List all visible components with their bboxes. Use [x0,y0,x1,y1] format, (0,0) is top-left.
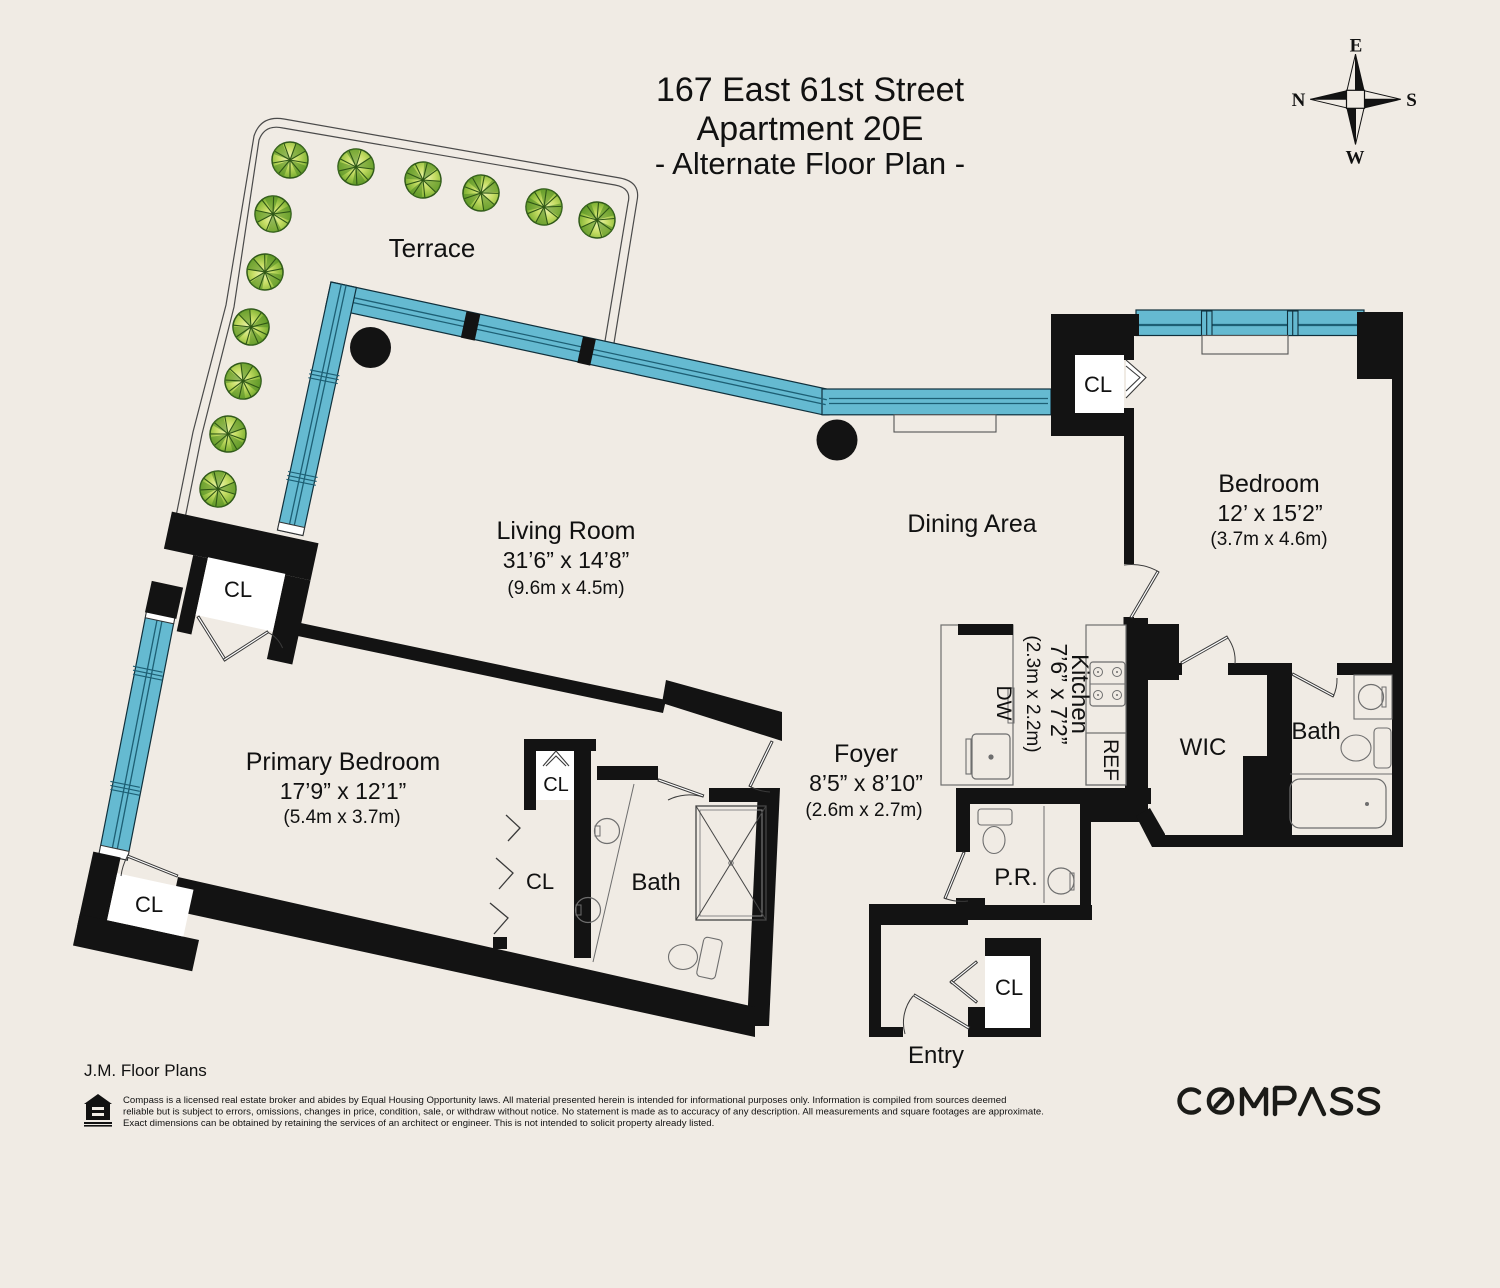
svg-text:31’6” x 14’8”: 31’6” x 14’8” [503,547,630,573]
svg-text:7’6” x 7’2”: 7’6” x 7’2” [1046,644,1072,745]
svg-text:Living Room: Living Room [497,517,636,545]
svg-text:Apartment 20E: Apartment 20E [697,110,924,148]
svg-text:CL: CL [224,577,252,602]
svg-text:E: E [1350,35,1363,56]
svg-text:- Alternate Floor Plan -: - Alternate Floor Plan - [655,146,965,181]
svg-text:N: N [1292,90,1306,111]
svg-text:W: W [1346,147,1365,168]
svg-text:J.M. Floor Plans: J.M. Floor Plans [84,1061,207,1080]
svg-text:REF: REF [1099,739,1122,781]
svg-text:P.R.: P.R. [994,864,1038,891]
svg-text:CL: CL [1084,372,1112,397]
svg-text:CL: CL [995,975,1023,1000]
svg-text:S: S [1406,90,1417,111]
svg-text:(5.4m x 3.7m): (5.4m x 3.7m) [283,807,400,828]
svg-text:CL: CL [526,869,554,894]
svg-text:17’9” x 12’1”: 17’9” x 12’1” [280,778,407,804]
svg-text:CL: CL [543,774,569,796]
svg-text:(9.6m x 4.5m): (9.6m x 4.5m) [507,578,624,599]
svg-text:8’5” x 8’10”: 8’5” x 8’10” [809,770,923,796]
svg-text:167 East 61st Street: 167 East 61st Street [656,71,965,109]
svg-text:Exact dimensions can be obtain: Exact dimensions can be obtained by reta… [123,1118,714,1129]
svg-text:DW: DW [992,686,1015,721]
svg-text:Foyer: Foyer [834,740,898,768]
svg-text:Bedroom: Bedroom [1218,470,1319,498]
svg-text:Primary Bedroom: Primary Bedroom [246,748,441,776]
svg-text:Compass is a licensed real est: Compass is a licensed real estate broker… [123,1095,1006,1106]
svg-text:Terrace: Terrace [389,233,476,263]
svg-text:Bath: Bath [631,869,680,896]
svg-text:12’ x 15’2”: 12’ x 15’2” [1217,500,1322,526]
svg-text:(3.7m x 4.6m): (3.7m x 4.6m) [1210,529,1327,550]
svg-text:Entry: Entry [908,1042,964,1069]
svg-text:(2.3m x 2.2m): (2.3m x 2.2m) [1022,635,1043,752]
svg-text:(2.6m x 2.7m): (2.6m x 2.7m) [805,800,922,821]
svg-text:Bath: Bath [1291,718,1340,745]
svg-text:Dining Area: Dining Area [907,510,1036,538]
svg-text:reliable but is subject to err: reliable but is subject to errors, omiss… [123,1107,1044,1118]
svg-text:CL: CL [135,892,163,917]
svg-text:WIC: WIC [1180,734,1227,761]
